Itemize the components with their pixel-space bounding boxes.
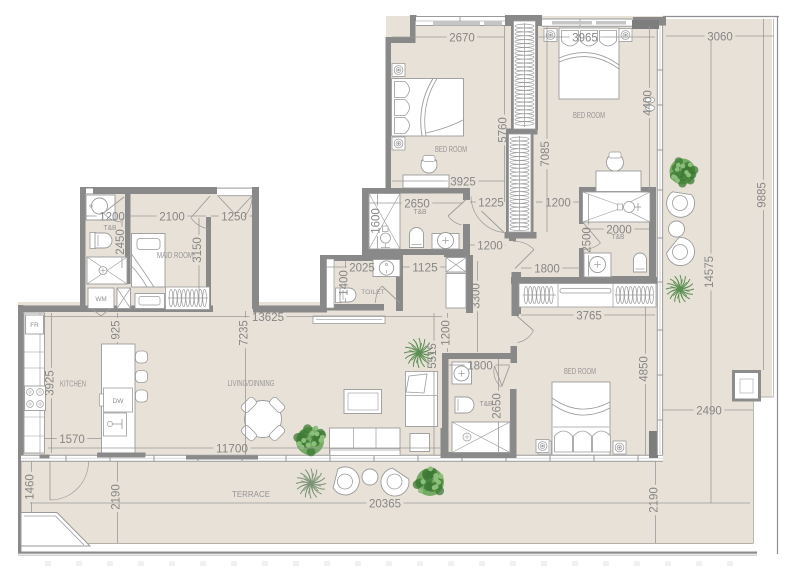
- svg-text:11700: 11700: [216, 441, 248, 455]
- svg-text:BED ROOM: BED ROOM: [573, 110, 605, 120]
- svg-text:FR: FR: [30, 322, 39, 329]
- svg-text:1600: 1600: [369, 208, 383, 234]
- svg-text:4850: 4850: [637, 356, 651, 382]
- svg-text:TERRACE: TERRACE: [232, 489, 270, 499]
- svg-text:3925: 3925: [43, 370, 57, 396]
- svg-text:2100: 2100: [159, 209, 185, 223]
- svg-text:WM: WM: [95, 296, 106, 303]
- svg-text:1125: 1125: [412, 260, 438, 274]
- svg-text:925: 925: [109, 320, 123, 340]
- svg-text:2450: 2450: [113, 229, 127, 255]
- svg-text:KITCHEN: KITCHEN: [60, 379, 86, 389]
- svg-text:3300: 3300: [469, 283, 483, 309]
- svg-text:1225: 1225: [478, 195, 504, 209]
- svg-text:1800: 1800: [467, 358, 493, 372]
- svg-text:2500: 2500: [580, 227, 594, 253]
- svg-text:3925: 3925: [450, 174, 476, 188]
- svg-text:1800: 1800: [534, 261, 560, 275]
- svg-text:2190: 2190: [647, 487, 661, 513]
- svg-text:1200: 1200: [545, 195, 571, 209]
- svg-text:3765: 3765: [576, 308, 602, 322]
- svg-text:BED ROOM: BED ROOM: [564, 366, 596, 376]
- svg-text:7085: 7085: [538, 141, 552, 167]
- svg-text:MAID ROOM: MAID ROOM: [157, 250, 193, 260]
- svg-text:9885: 9885: [755, 182, 769, 208]
- svg-text:1200: 1200: [477, 238, 503, 252]
- svg-text:1400: 1400: [337, 270, 351, 296]
- svg-text:TOILET: TOILET: [361, 289, 385, 296]
- svg-text:1460: 1460: [23, 474, 37, 500]
- svg-text:DW: DW: [113, 398, 125, 405]
- svg-text:1570: 1570: [59, 432, 85, 446]
- svg-text:1200: 1200: [99, 209, 125, 223]
- svg-text:1250: 1250: [221, 209, 247, 223]
- svg-text:LIVING/DINNING: LIVING/DINNING: [228, 378, 275, 388]
- svg-text:2190: 2190: [109, 484, 123, 510]
- svg-text:13625: 13625: [252, 310, 284, 324]
- svg-text:14575: 14575: [702, 256, 716, 288]
- svg-text:BED ROOM: BED ROOM: [435, 144, 467, 154]
- svg-text:2670: 2670: [449, 30, 475, 44]
- svg-text:T&B: T&B: [414, 207, 427, 216]
- svg-text:1200: 1200: [439, 320, 453, 346]
- svg-text:2490: 2490: [696, 403, 722, 417]
- svg-text:7235: 7235: [237, 320, 251, 346]
- svg-text:2025: 2025: [349, 260, 375, 274]
- svg-text:2650: 2650: [490, 393, 504, 419]
- svg-text:3965: 3965: [572, 30, 598, 44]
- svg-text:T&B: T&B: [612, 232, 625, 241]
- svg-text:20365: 20365: [369, 496, 401, 510]
- svg-text:5760: 5760: [496, 117, 510, 143]
- svg-text:5515: 5515: [425, 343, 439, 369]
- svg-text:4400: 4400: [641, 90, 655, 116]
